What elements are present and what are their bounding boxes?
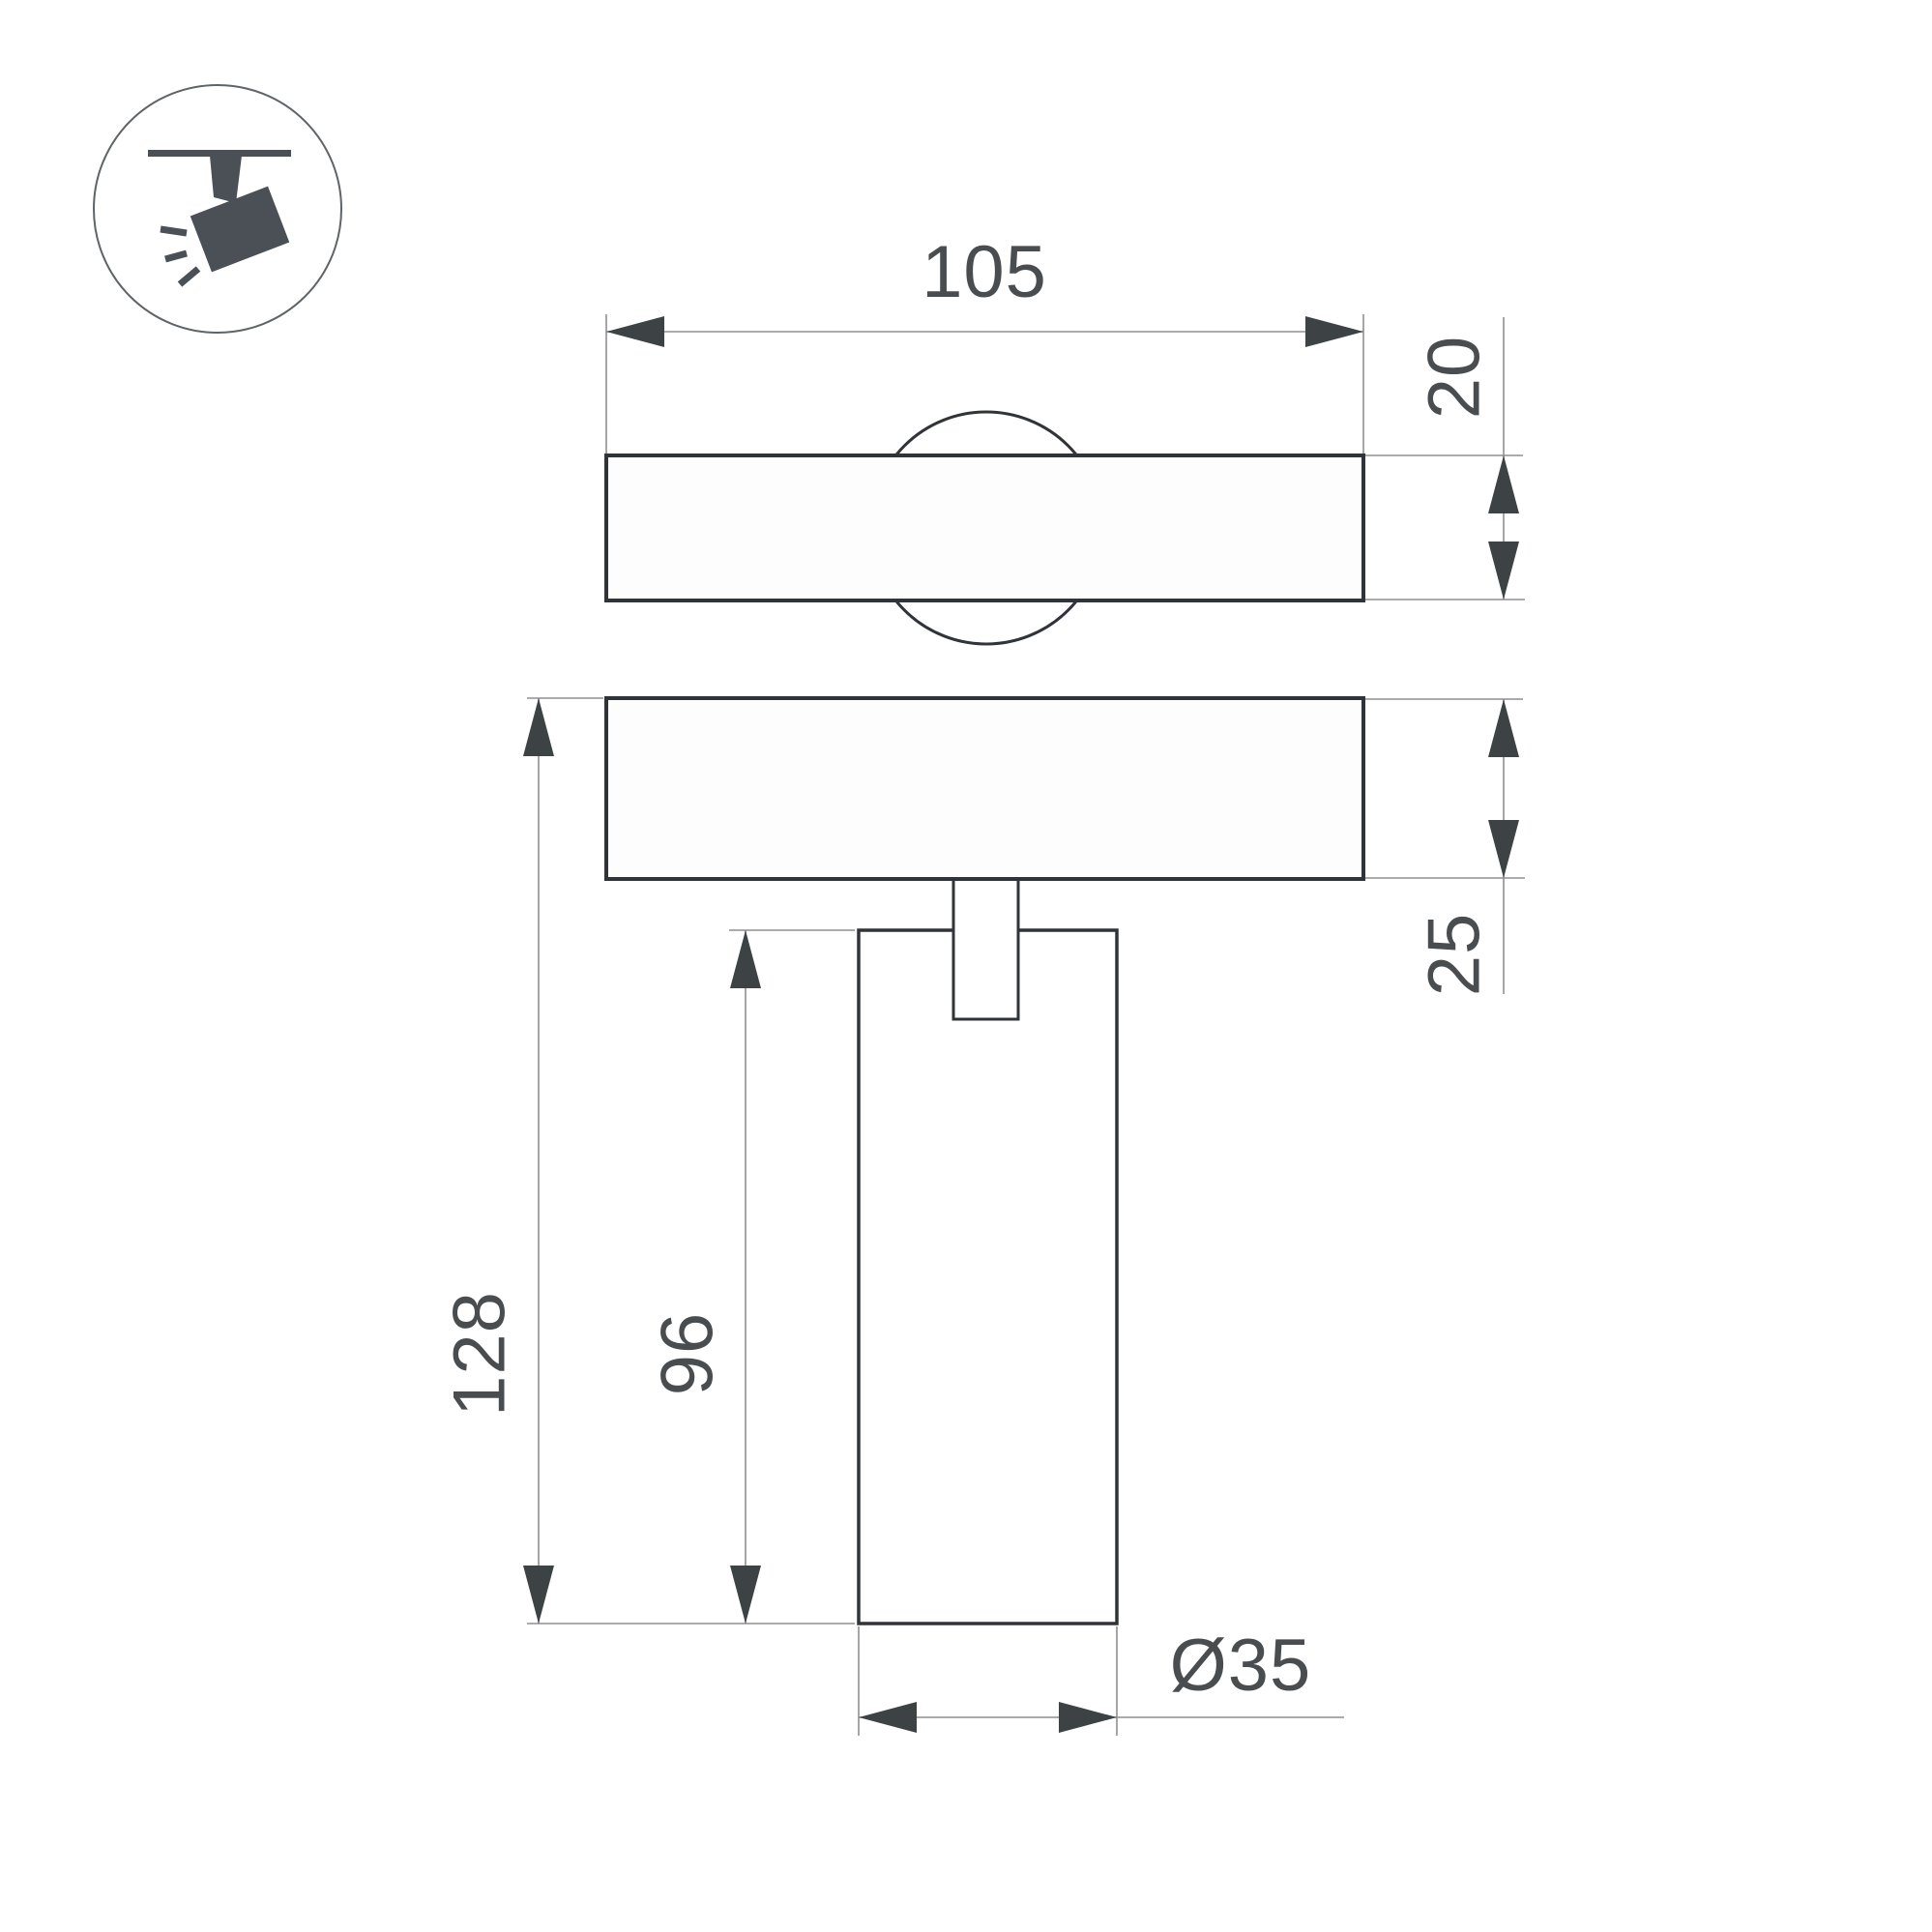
front-view bbox=[606, 698, 1363, 1624]
dim-105-arrow-left bbox=[606, 316, 664, 347]
dim-35-arrow-left bbox=[859, 1702, 917, 1733]
dim-96: 96 bbox=[647, 930, 855, 1624]
top-view bbox=[606, 412, 1363, 644]
dim-96-arrow-up bbox=[730, 930, 761, 988]
dim-20-label: 20 bbox=[1414, 336, 1496, 420]
technical-drawing: 105 20 25 128 96 bbox=[0, 0, 1932, 1932]
dim-25-arrow-down bbox=[1488, 820, 1519, 878]
dim-20: 20 bbox=[1365, 317, 1525, 600]
dim-25-label: 25 bbox=[1414, 913, 1496, 997]
dim-96-arrow-down bbox=[730, 1566, 761, 1624]
dim-35-arrow-right bbox=[1059, 1702, 1117, 1733]
drawing-canvas: 105 20 25 128 96 bbox=[0, 0, 1932, 1932]
dim-128-arrow-up bbox=[523, 698, 554, 756]
dim-20-arrow-down bbox=[1488, 542, 1519, 600]
track-spotlight-icon bbox=[94, 85, 341, 333]
dim-20-arrow-up bbox=[1488, 455, 1519, 513]
top-view-plate bbox=[606, 455, 1363, 600]
dim-25-arrow-up bbox=[1488, 699, 1519, 757]
icon-track-line bbox=[148, 150, 291, 157]
dim-128-arrow-down bbox=[523, 1566, 554, 1624]
dim-128-label: 128 bbox=[439, 1291, 521, 1417]
dim-105-arrow-right bbox=[1305, 316, 1363, 347]
stem-fill bbox=[953, 879, 1018, 1019]
cylinder-body bbox=[859, 930, 1117, 1624]
dim-35: Ø35 bbox=[859, 1625, 1344, 1736]
front-view-plate bbox=[606, 698, 1363, 879]
dim-96-label: 96 bbox=[647, 1312, 729, 1396]
dim-105-label: 105 bbox=[922, 231, 1047, 313]
dim-25: 25 bbox=[1365, 699, 1525, 996]
dim-35-label: Ø35 bbox=[1170, 1625, 1312, 1707]
